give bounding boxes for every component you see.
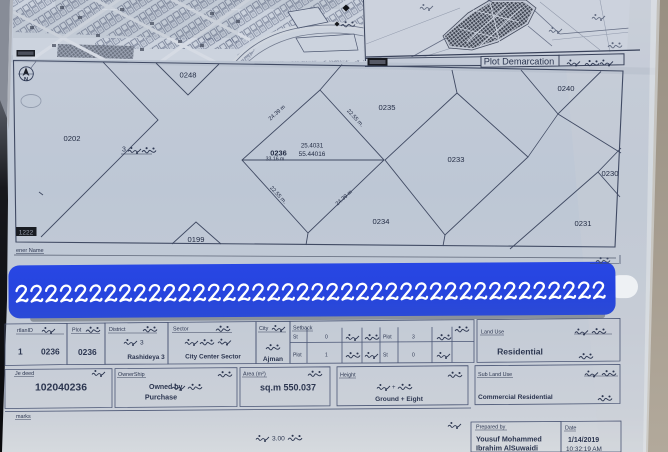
svg-text:0236: 0236 [78, 347, 97, 357]
svg-text:rtlanID: rtlanID [17, 328, 33, 334]
svg-text:Plot: Plot [383, 335, 392, 341]
svg-text:1/14/2019: 1/14/2019 [568, 437, 599, 444]
svg-text:0202: 0202 [64, 134, 81, 143]
svg-text:Plot: Plot [293, 353, 302, 359]
svg-text:Residential: Residential [497, 347, 543, 357]
svg-text:0234: 0234 [373, 217, 390, 226]
svg-text:marks: marks [16, 414, 31, 420]
svg-text:Prepared by: Prepared by [476, 425, 506, 431]
svg-text:0: 0 [412, 353, 415, 359]
svg-text:Owned by: Owned by [149, 384, 183, 391]
svg-text:10:32:19 AM: 10:32:19 AM [566, 446, 602, 452]
svg-text:District: District [109, 327, 126, 333]
svg-text:Je deed: Je deed [15, 371, 34, 377]
svg-text:Setback: Setback [293, 326, 313, 332]
svg-text:Sector: Sector [173, 327, 189, 333]
svg-text:102040236: 102040236 [35, 383, 87, 394]
svg-text:Sub Land Use: Sub Land Use [478, 372, 512, 378]
svg-text:Height: Height [340, 373, 356, 379]
svg-text:0199: 0199 [188, 235, 205, 244]
svg-text:Rashideya 3: Rashideya 3 [127, 354, 165, 361]
svg-text:Plot: Plot [72, 328, 82, 334]
svg-text:Ibrahim AlSuwaidi: Ibrahim AlSuwaidi [476, 444, 538, 452]
svg-text:+: + [392, 385, 396, 391]
svg-text:0240: 0240 [558, 84, 575, 93]
svg-text:Purchase: Purchase [145, 393, 177, 402]
svg-text:OwnerShip: OwnerShip [118, 372, 145, 378]
svg-text:1: 1 [18, 347, 23, 357]
svg-text:Date: Date [565, 426, 576, 432]
svg-text:City Center Sector: City Center Sector [185, 354, 241, 361]
svg-text:Yousuf Mohammed: Yousuf Mohammed [476, 435, 542, 444]
svg-text:Land Use: Land Use [481, 330, 504, 336]
svg-text:1222: 1222 [19, 230, 34, 237]
svg-text:ener Name: ener Name [16, 248, 44, 254]
svg-text:St: St [293, 335, 298, 341]
svg-text:N: N [24, 77, 28, 83]
svg-text:0233: 0233 [448, 155, 465, 164]
svg-text:0: 0 [325, 335, 328, 341]
svg-text:0230: 0230 [602, 169, 619, 178]
svg-text:sq.m 550.037: sq.m 550.037 [260, 383, 316, 393]
svg-text:33.16 m: 33.16 m [266, 156, 285, 162]
svg-text:0231: 0231 [575, 219, 592, 228]
svg-text:1: 1 [325, 353, 328, 359]
svg-text:3: 3 [412, 335, 415, 341]
svg-text:0248: 0248 [180, 71, 197, 80]
svg-text:0235: 0235 [379, 103, 396, 112]
svg-text:Ajman: Ajman [263, 356, 283, 363]
svg-text:0236: 0236 [41, 347, 60, 357]
svg-text:Area (m²): Area (m²) [243, 372, 266, 378]
svg-text:Plot Demarcation: Plot Demarcation [484, 57, 554, 67]
svg-text:St: St [383, 353, 388, 359]
svg-text:25.4031: 25.4031 [301, 143, 324, 150]
svg-text:Commercial Residential: Commercial Residential [478, 394, 553, 401]
svg-text:City: City [259, 326, 269, 332]
svg-text:Ground + Eight: Ground + Eight [375, 396, 424, 403]
svg-text:3: 3 [140, 340, 144, 347]
svg-text:55.44016: 55.44016 [299, 151, 326, 158]
svg-text:3: 3 [122, 147, 126, 154]
svg-text:3.00: 3.00 [272, 436, 285, 443]
